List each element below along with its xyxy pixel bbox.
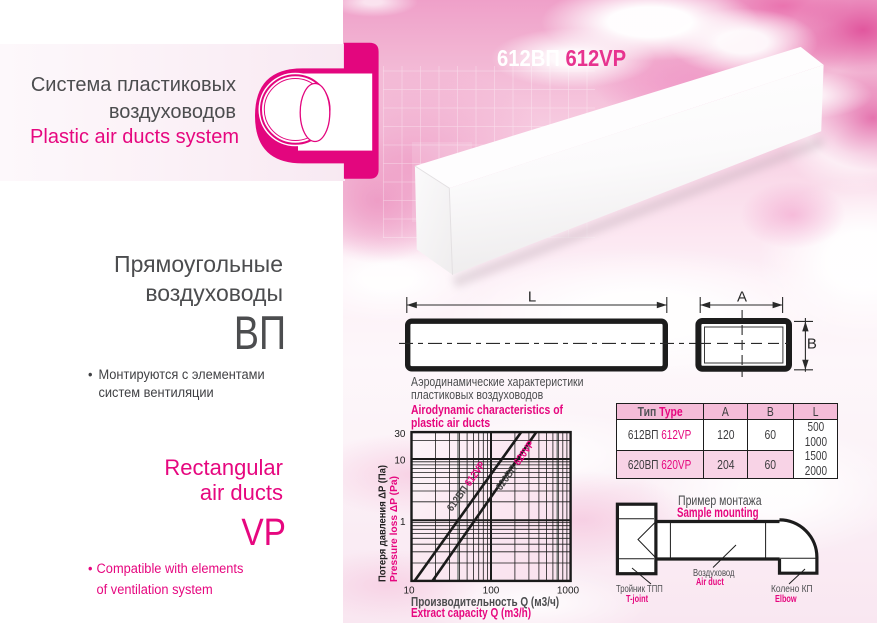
svg-text:Потеря давления ΔP (Па): Потеря давления ΔP (Па) xyxy=(378,465,389,582)
svg-text:B: B xyxy=(807,336,817,353)
svg-text:10: 10 xyxy=(394,456,406,467)
svg-text:Pressure loss ΔP (Pa): Pressure loss ΔP (Pa) xyxy=(389,476,400,582)
svg-text:1: 1 xyxy=(400,517,406,528)
svg-text:30: 30 xyxy=(394,429,406,440)
svg-text:A: A xyxy=(737,289,747,306)
svg-text:L: L xyxy=(528,289,536,306)
svg-text:1000: 1000 xyxy=(557,586,580,597)
